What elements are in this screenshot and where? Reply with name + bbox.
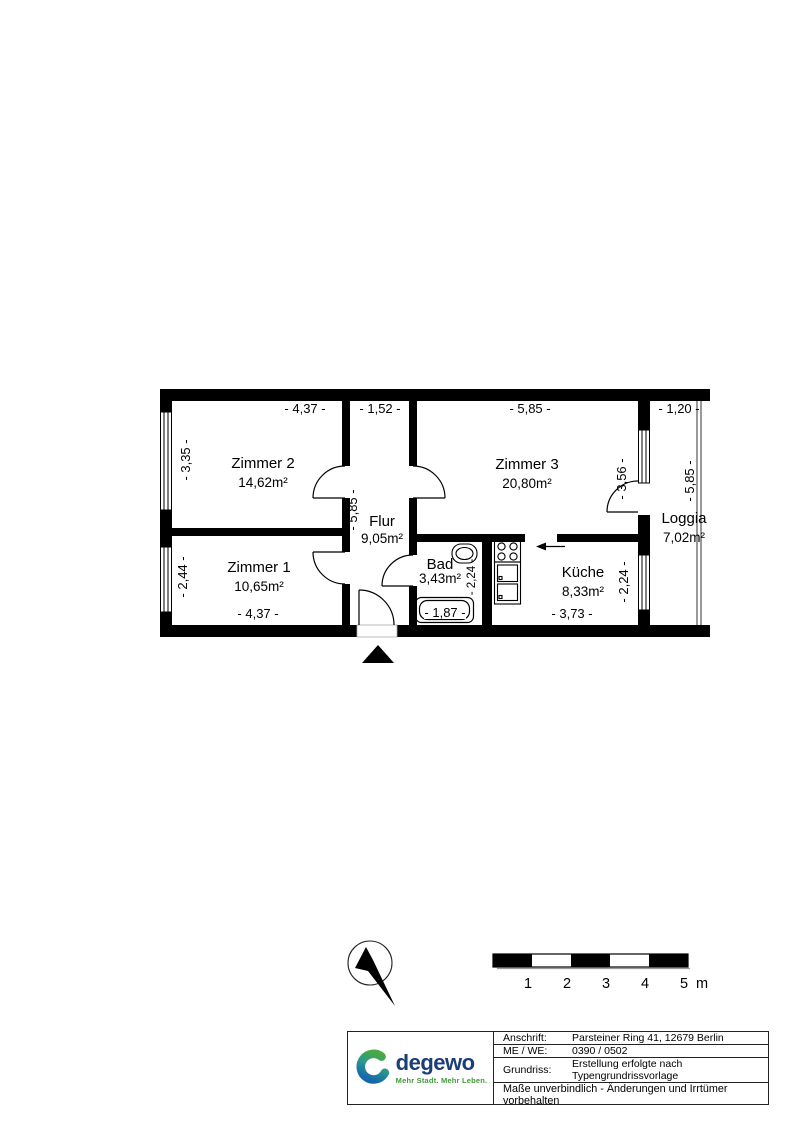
kitchen-entry-arrow-icon [536,543,565,551]
logo-cell: degewo Mehr Stadt. Mehr Leben. [348,1032,494,1104]
room-label-zimmer1: Zimmer 1 [227,559,290,576]
dim-bottom-zimmer1: - 4,37 - [237,606,278,621]
info-label: Anschrift: [494,1032,567,1044]
info-value: Parsteiner Ring 41, 12679 Berlin [567,1032,724,1044]
room-label-zimmer3: Zimmer 3 [495,456,558,473]
info-row-anschrift: Anschrift: Parsteiner Ring 41, 12679 Ber… [494,1032,768,1045]
degewo-logo-icon [354,1049,392,1087]
scale-label-2: 2 [563,976,571,992]
dim-top-flur: - 1,52 - [359,401,400,416]
disclaimer-row: Maße unverbindlich - Änderungen und Irrt… [494,1083,768,1107]
interior-walls [172,401,650,637]
scale-label-4: 4 [641,976,649,992]
room-area-zimmer1: 10,65m² [234,579,284,594]
dim-flur-vertical: - 5,85 - [345,489,360,530]
room-area-bad: 3,43m² [419,571,462,586]
room-area-loggia: 7,02m² [663,530,706,545]
room-area-zimmer3: 20,80m² [502,476,552,491]
info-label: ME / WE: [494,1045,567,1057]
dim-left-zimmer2: - 3,35 - [178,439,193,480]
sink-unit-icon [495,562,521,604]
title-block: degewo Mehr Stadt. Mehr Leben. Anschrift… [347,1031,769,1105]
info-label: Grundriss: [494,1064,567,1076]
scale-bar: 1 2 3 4 5 m [493,954,708,992]
dim-top-zimmer3: - 5,85 - [509,401,550,416]
info-row-grundriss: Grundriss: Erstellung erfolgte nach Type… [494,1058,768,1083]
info-row-me-we: ME / WE: 0390 / 0502 [494,1045,768,1058]
room-area-zimmer2: 14,62m² [238,475,288,490]
room-label-loggia: Loggia [661,510,707,527]
cooktop-icon [495,540,521,562]
info-value: Erstellung erfolgte nach Typengrundrissv… [567,1058,768,1082]
scale-unit: m [696,976,708,992]
room-area-kueche: 8,33m² [562,584,605,599]
dim-loggia-vertical: - 5,85 - [682,460,697,501]
scale-label-3: 3 [602,976,610,992]
room-area-flur: 9,05m² [361,531,404,546]
dim-zimmer3-loggia: - 3,56 - [614,458,629,499]
room-label-kueche: Küche [562,564,605,581]
room-label-flur: Flur [369,513,395,530]
entrance-triangle-icon [362,645,394,663]
disclaimer-text: Maße unverbindlich - Änderungen und Irrt… [503,1083,768,1107]
dim-top-zimmer2: - 4,37 - [284,401,325,416]
floorplan-drawing: Zimmer 2 14,62m² Zimmer 3 20,80m² Zimmer… [0,0,801,1140]
dim-bottom-kueche: - 3,73 - [551,606,592,621]
dim-left-zimmer1: - 2,44 - [175,556,190,597]
room-label-zimmer2: Zimmer 2 [231,455,294,472]
info-cell: Anschrift: Parsteiner Ring 41, 12679 Ber… [494,1032,768,1104]
info-value: 0390 / 0502 [567,1045,627,1057]
brand-name: degewo [396,1052,475,1074]
floorplan-page: Zimmer 2 14,62m² Zimmer 3 20,80m² Zimmer… [0,0,801,1140]
dim-bad-vertical: - 2,24 - [466,559,478,596]
dim-top-loggia: - 1,20 - [658,401,699,416]
brand-tagline: Mehr Stadt. Mehr Leben. [396,1076,488,1085]
north-arrow-icon [348,941,395,1006]
dim-bottom-bad: - 1,87 - [424,605,465,620]
dim-kueche-vertical: - 2,24 - [616,561,631,602]
scale-label-5: 5 [680,976,688,992]
scale-label-1: 1 [524,976,532,992]
